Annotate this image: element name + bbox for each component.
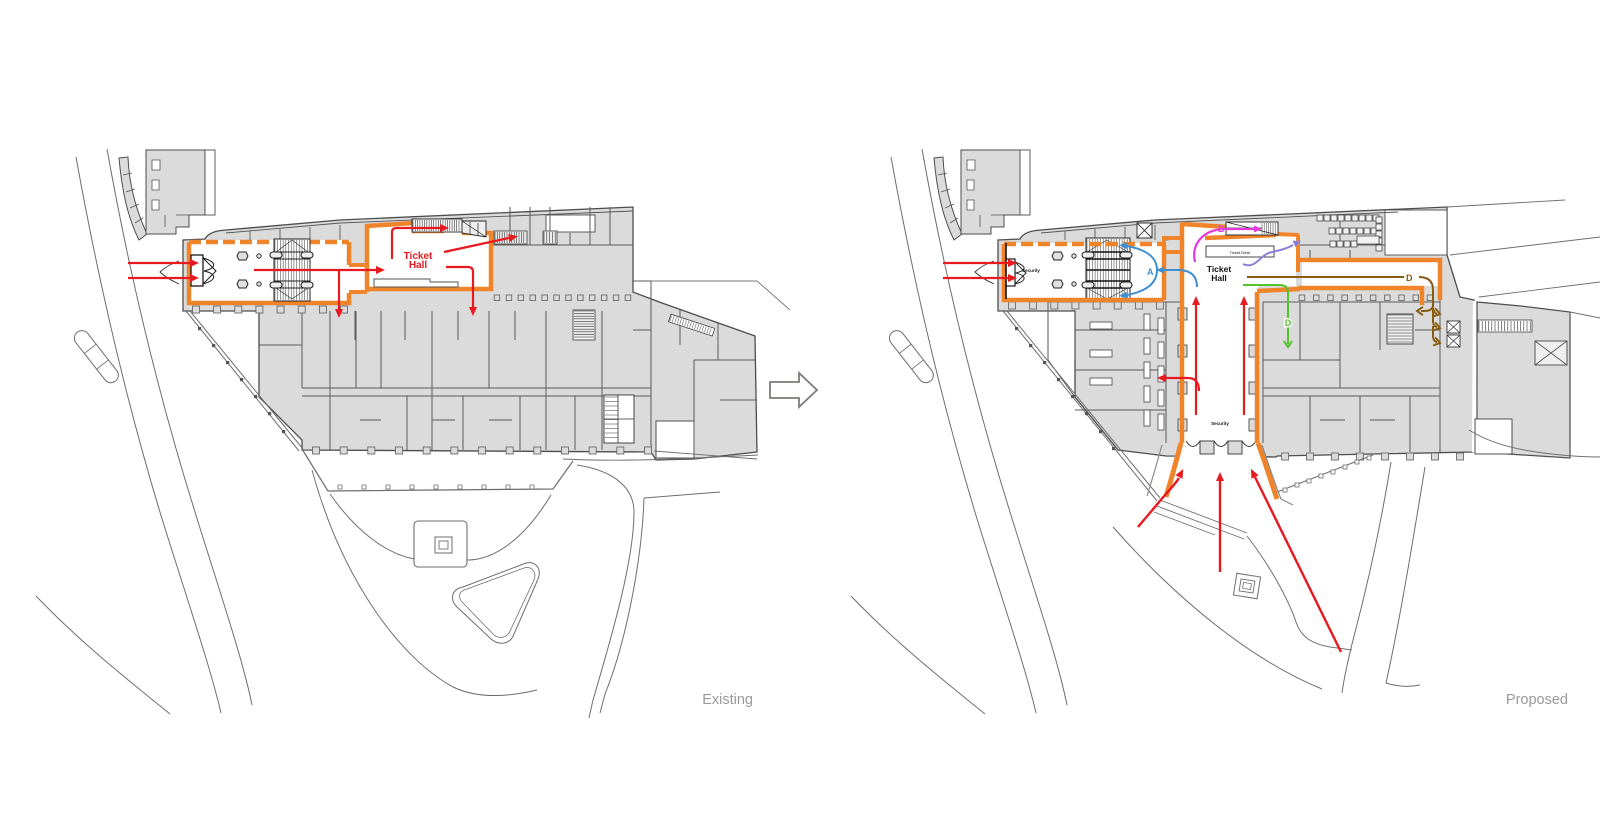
- svg-text:A: A: [1147, 267, 1154, 277]
- svg-text:D: D: [1406, 273, 1413, 283]
- svg-text:B: B: [1218, 224, 1225, 234]
- svg-text:Security: Security: [1022, 268, 1040, 273]
- svg-text:Existing: Existing: [702, 692, 753, 708]
- svg-text:Proposed: Proposed: [1506, 692, 1568, 708]
- svg-text:Hall: Hall: [409, 260, 428, 271]
- svg-text:Security: Security: [1211, 421, 1229, 426]
- svg-text:D: D: [1285, 318, 1292, 328]
- svg-text:Hall: Hall: [1211, 273, 1227, 283]
- svg-text:Ticket Desk: Ticket Desk: [1230, 250, 1251, 255]
